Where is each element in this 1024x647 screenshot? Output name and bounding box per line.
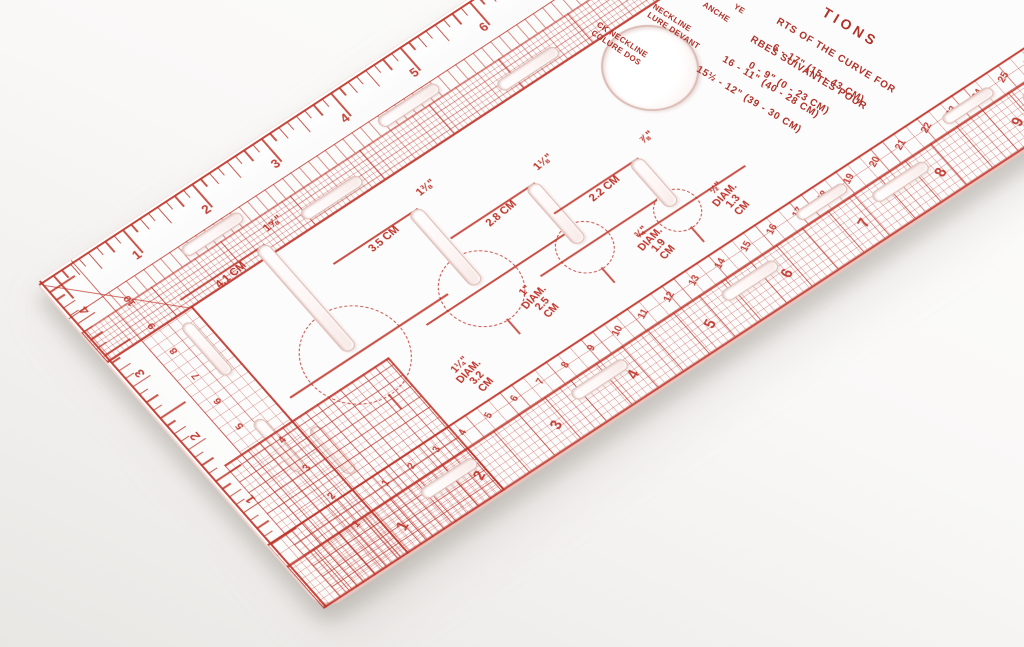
ruler-line	[516, 24, 529, 39]
inch-tick	[443, 19, 450, 27]
inch-tick	[153, 404, 162, 410]
inch-tick	[339, 87, 346, 95]
inch-tick	[139, 389, 148, 395]
inch-tick	[209, 173, 219, 184]
inch-tick	[452, 13, 462, 24]
ruler-line	[533, 13, 546, 28]
inch-tick	[287, 122, 294, 130]
inch-tick	[208, 467, 217, 473]
inch-tick	[264, 530, 273, 536]
ruler-line	[542, 7, 555, 22]
inch-tick	[105, 241, 115, 252]
buttonhole-length-label: ⅞"	[637, 129, 657, 146]
button-diameter-label: 1¼"DIAM.3.2CM	[445, 351, 500, 398]
inch-tick	[243, 150, 253, 161]
inch-tick	[194, 452, 203, 458]
inch-tick	[417, 36, 427, 47]
ruler-line	[351, 133, 364, 148]
inch-tick	[408, 42, 415, 50]
inch-tick	[296, 116, 311, 133]
inch-tick	[87, 253, 102, 270]
inch-tick	[131, 224, 138, 232]
inch-tick	[257, 520, 270, 529]
inch-tick	[160, 401, 187, 419]
inch-tick	[118, 363, 131, 372]
ruler-line	[290, 173, 303, 188]
ruler-line	[455, 64, 468, 79]
inch-tick	[486, 0, 496, 2]
inch-tick	[63, 300, 76, 309]
ruler-line	[143, 269, 156, 284]
ruler-line	[247, 201, 260, 216]
ruler-line	[160, 258, 173, 273]
inch-tick	[217, 167, 224, 175]
ruler-line	[255, 195, 268, 210]
ruler-line	[342, 138, 355, 153]
inch-tick	[56, 294, 65, 300]
ruler-line	[333, 144, 346, 159]
ruler-line	[463, 59, 476, 74]
inch-tick	[356, 76, 363, 84]
inch-tick	[374, 65, 381, 73]
ruler-line	[151, 264, 164, 279]
inch-tick	[391, 53, 398, 61]
ruler-line	[273, 184, 286, 199]
ruler-line	[307, 161, 320, 176]
inch-tick	[146, 394, 159, 403]
ruler-line	[264, 190, 277, 205]
ruler-line	[524, 19, 537, 34]
ruler-line	[472, 53, 485, 68]
inch-tick	[183, 190, 190, 198]
inch-tick	[61, 270, 68, 278]
inch-tick	[200, 179, 207, 187]
inch-tick	[365, 70, 380, 87]
ruler-line	[498, 36, 511, 51]
ruler-line	[550, 2, 563, 17]
button-diameter-label: ½"DIAM.1.3CM	[701, 175, 756, 222]
inch-tick	[201, 457, 214, 466]
inch-tick	[148, 213, 155, 221]
inch-tick	[252, 144, 259, 152]
inch-tick	[165, 201, 172, 209]
ruler-line	[489, 42, 502, 57]
photo-sewing-gauge: 1234567891011121314432110987654321123456…	[0, 0, 1024, 647]
inch-tick	[113, 236, 120, 244]
ruler-plate: 1234567891011121314432110987654321123456…	[35, 0, 1024, 612]
ruler-line	[359, 127, 372, 142]
ruler-line	[325, 150, 338, 165]
buttonhole-length-label: 1⅜"	[414, 177, 439, 198]
inch-tick	[96, 247, 103, 255]
ruler-line	[333, 208, 418, 265]
ruler-line	[481, 47, 494, 62]
ruler-line	[281, 178, 294, 193]
ruler-line	[446, 70, 459, 85]
ruler-line	[568, 0, 581, 5]
ruler-line	[506, 318, 520, 334]
inch-tick	[226, 162, 241, 179]
inch-tick	[174, 196, 184, 207]
inch-tick	[382, 59, 392, 70]
ruler-line	[299, 167, 312, 182]
ruler-line	[553, 157, 638, 214]
ruler-line	[690, 226, 704, 242]
inch-tick	[426, 31, 433, 39]
buttonhole-length-label: 1⅛"	[531, 152, 556, 173]
inch-tick	[222, 483, 231, 489]
ruler-line	[316, 155, 329, 170]
inch-tick	[269, 133, 276, 141]
inch-tick	[250, 515, 259, 521]
inch-tick	[229, 489, 242, 498]
inch-tick	[304, 110, 311, 118]
inch-tick	[167, 420, 176, 426]
inch-tick	[348, 82, 358, 93]
inch-tick	[313, 105, 323, 116]
inch-tick	[278, 127, 288, 138]
ruler-line	[559, 0, 572, 11]
ruler-line	[134, 275, 147, 290]
ruler-line	[507, 30, 520, 45]
inch-tick	[434, 25, 449, 42]
inch-tick	[478, 0, 485, 4]
inch-tick	[235, 156, 242, 164]
ruler-line	[169, 252, 182, 267]
inch-tick	[322, 99, 329, 107]
ruler-line	[450, 182, 535, 239]
inch-tick	[139, 218, 149, 229]
inch-tick	[79, 258, 86, 266]
inch-tick	[157, 207, 172, 224]
inch-tick	[174, 426, 187, 435]
ruler-line	[601, 267, 615, 283]
inch-tick	[460, 8, 467, 16]
